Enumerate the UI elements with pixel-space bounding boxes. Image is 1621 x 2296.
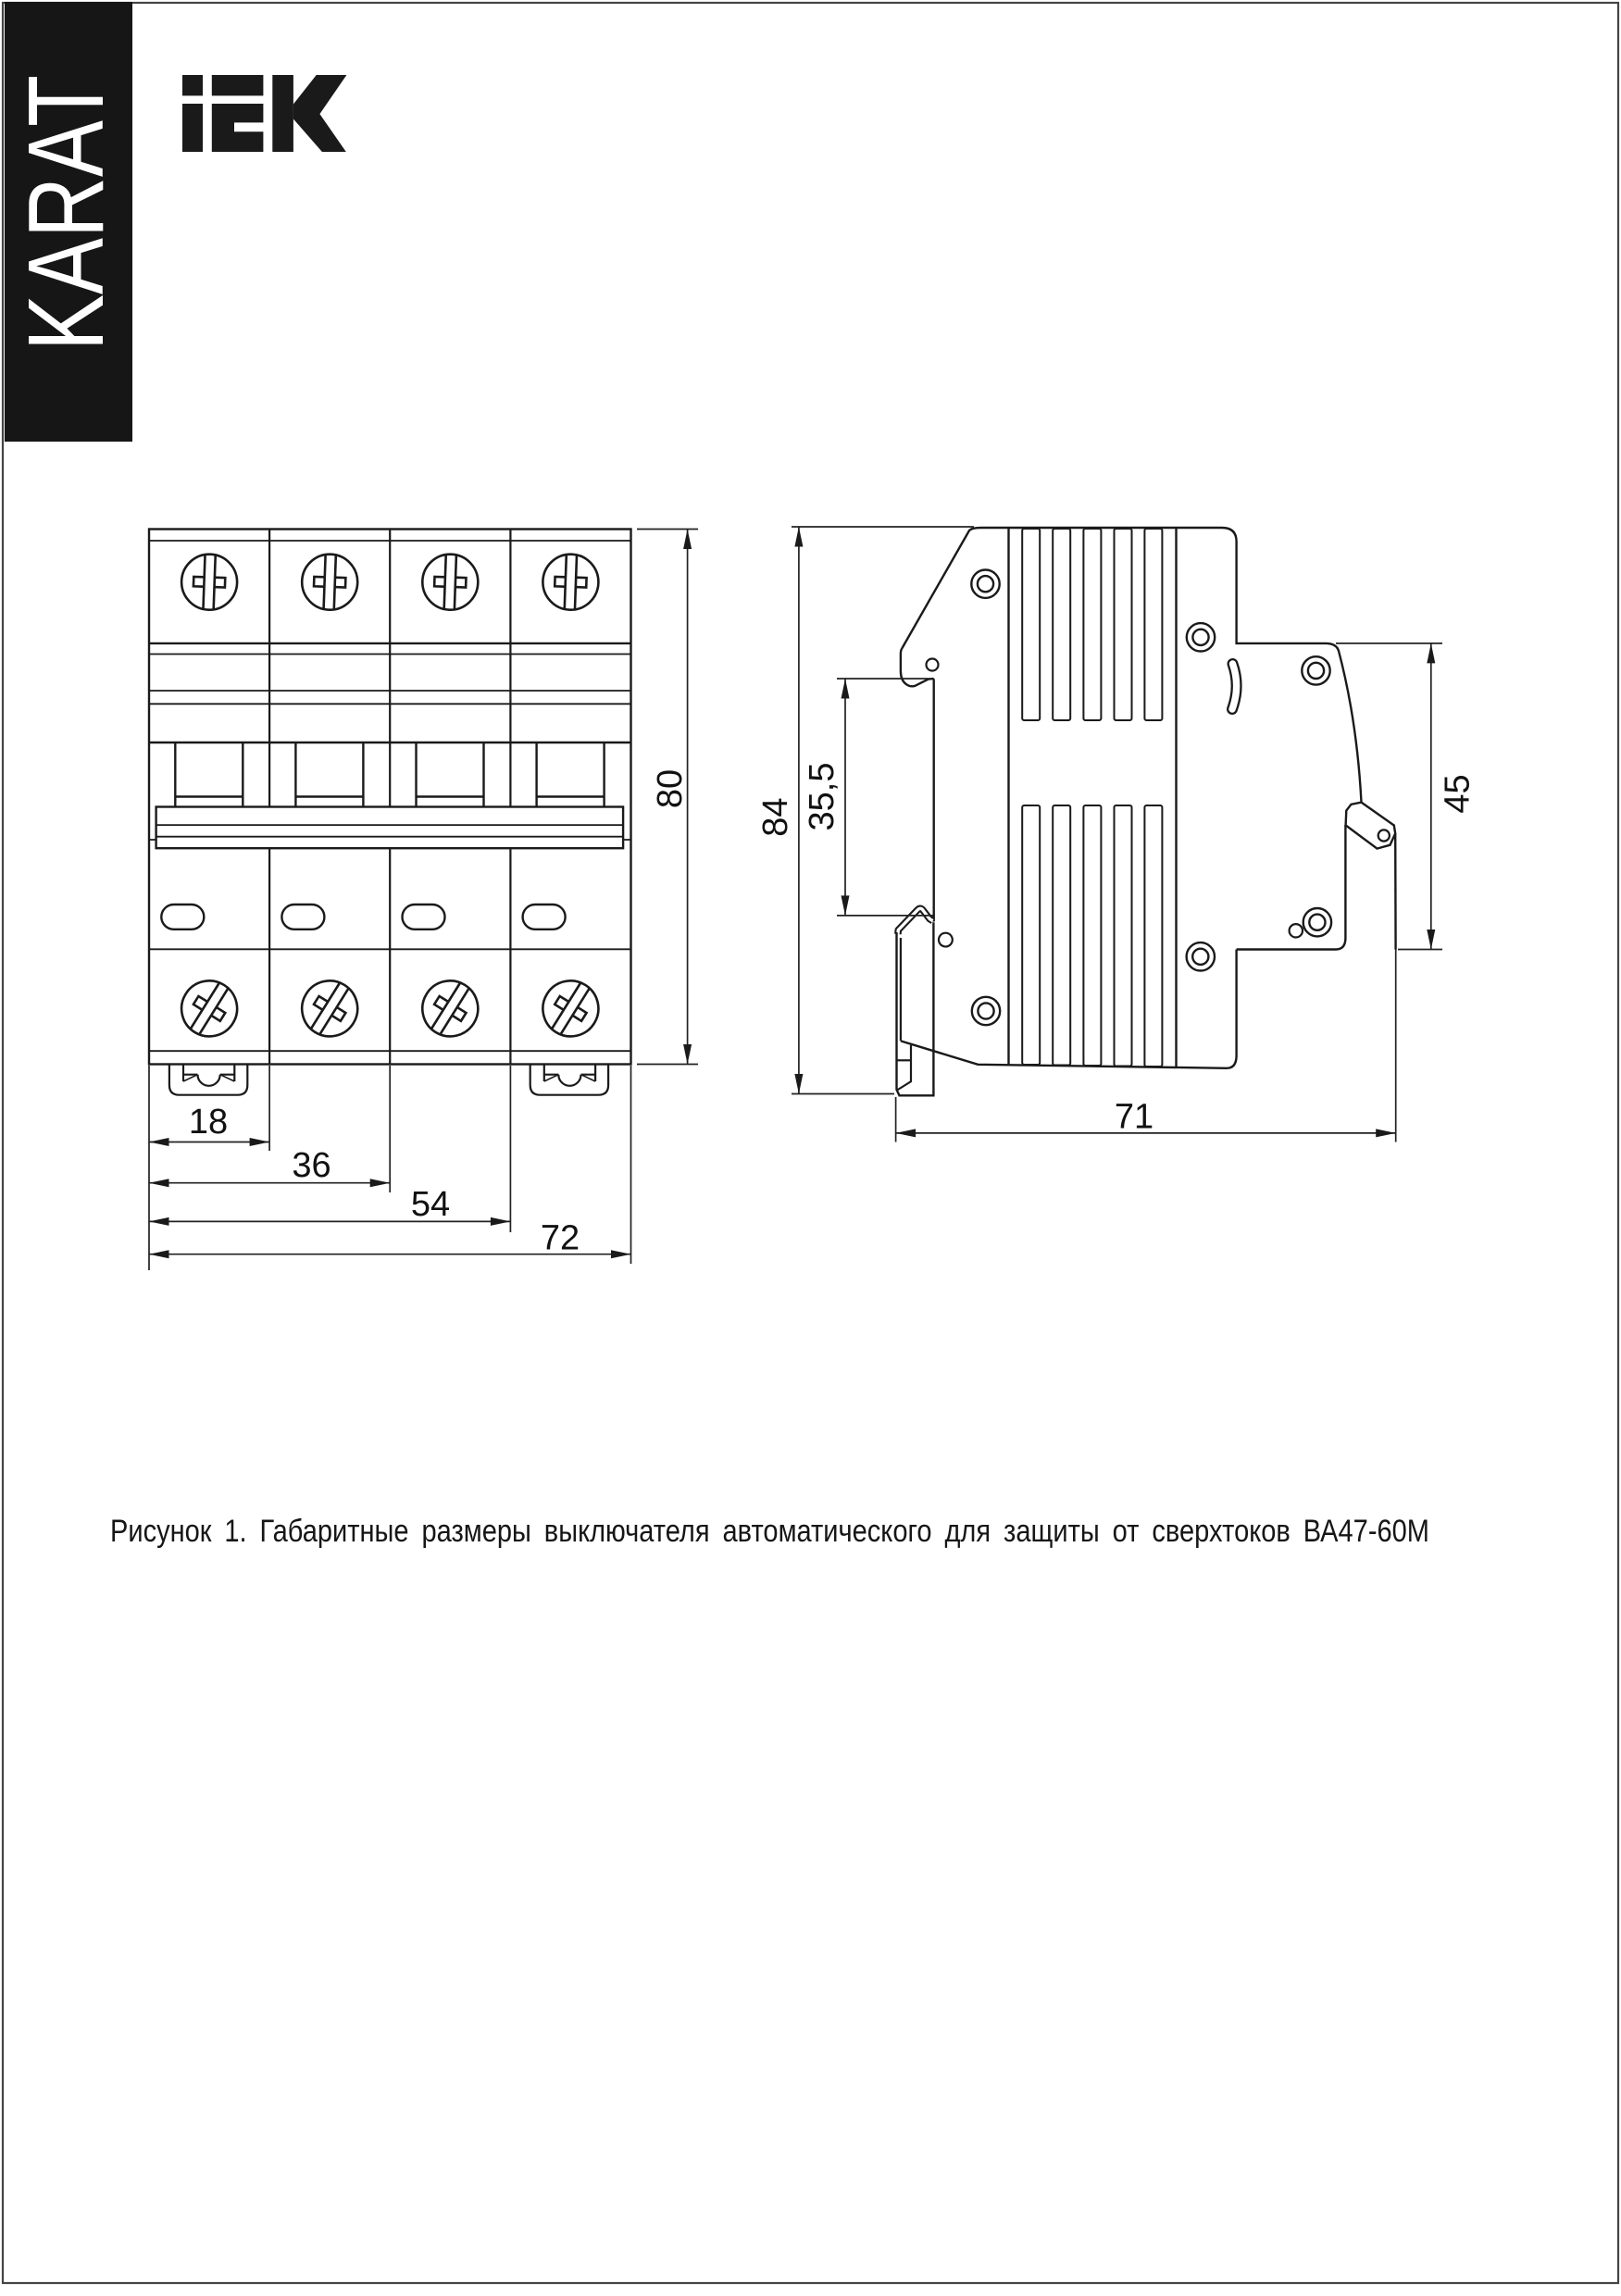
svg-text:45: 45 <box>1439 774 1478 813</box>
svg-text:KARAT: KARAT <box>6 75 126 351</box>
svg-text:18: 18 <box>189 1103 228 1142</box>
svg-text:54: 54 <box>411 1185 450 1224</box>
svg-text:84: 84 <box>756 797 795 836</box>
svg-text:72: 72 <box>541 1219 580 1258</box>
svg-text:36: 36 <box>292 1146 330 1185</box>
svg-text:35,5: 35,5 <box>803 763 842 831</box>
svg-text:80: 80 <box>651 769 690 808</box>
svg-text:71: 71 <box>1115 1098 1153 1137</box>
